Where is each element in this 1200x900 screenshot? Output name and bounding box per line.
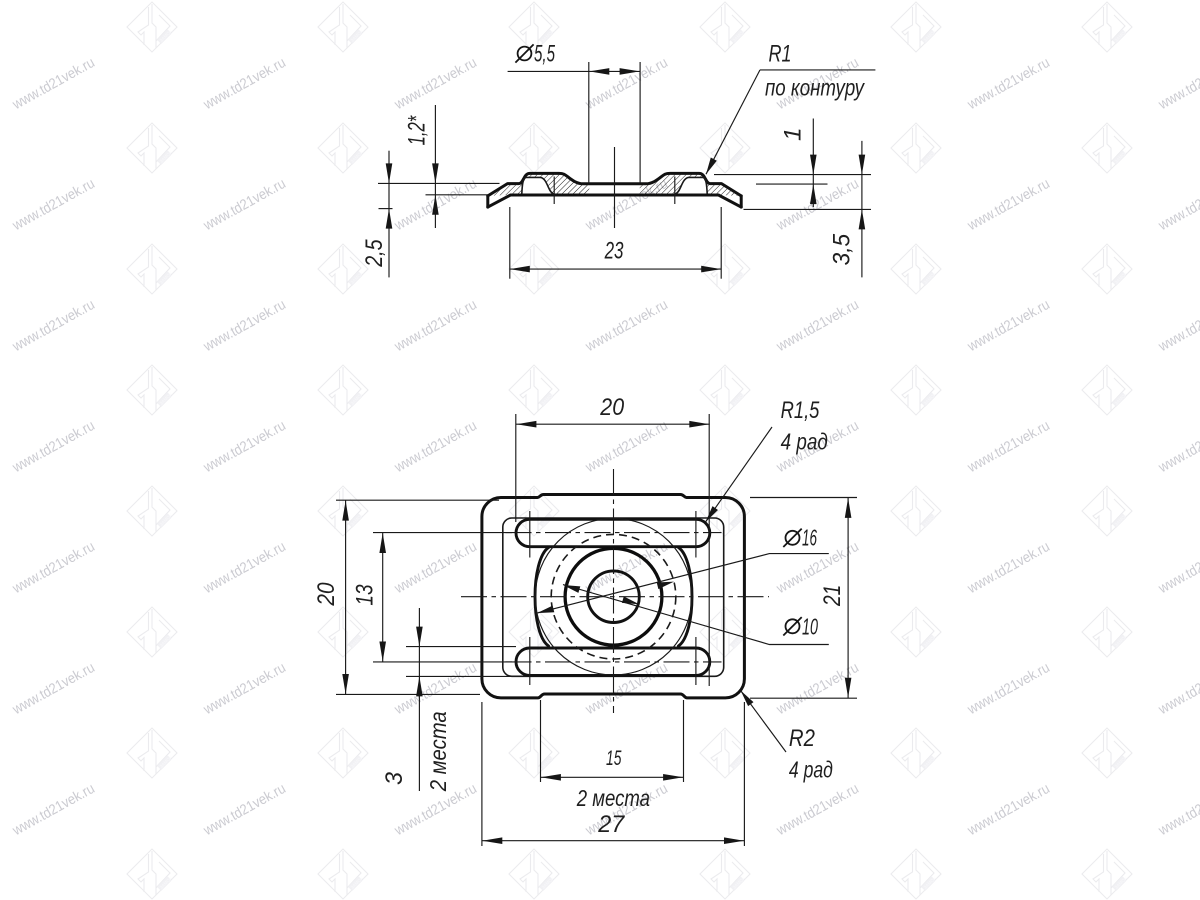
- svg-text:4 рад: 4 рад: [781, 429, 828, 455]
- svg-text:2 места: 2 места: [425, 711, 451, 792]
- svg-text:5,5: 5,5: [534, 41, 555, 68]
- svg-text:4 рад: 4 рад: [789, 757, 833, 783]
- svg-text:16: 16: [802, 525, 817, 551]
- svg-text:R2: R2: [789, 725, 815, 752]
- svg-text:15: 15: [606, 747, 622, 770]
- svg-text:20: 20: [313, 582, 340, 607]
- svg-text:21: 21: [819, 585, 846, 607]
- svg-text:2 места: 2 места: [576, 785, 650, 811]
- svg-text:27: 27: [597, 811, 626, 838]
- svg-text:23: 23: [604, 237, 624, 264]
- svg-text:по контуру: по контуру: [765, 75, 865, 101]
- svg-text:R1,5: R1,5: [781, 397, 820, 424]
- svg-text:2,5: 2,5: [361, 239, 388, 268]
- svg-text:10: 10: [802, 614, 818, 640]
- svg-text:13: 13: [351, 584, 378, 606]
- svg-text:3: 3: [381, 771, 408, 785]
- svg-text:3,5: 3,5: [829, 233, 856, 265]
- svg-text:1: 1: [780, 128, 807, 142]
- svg-text:20: 20: [599, 394, 624, 421]
- svg-text:R1: R1: [769, 41, 792, 68]
- svg-text:1,2*: 1,2*: [404, 115, 431, 145]
